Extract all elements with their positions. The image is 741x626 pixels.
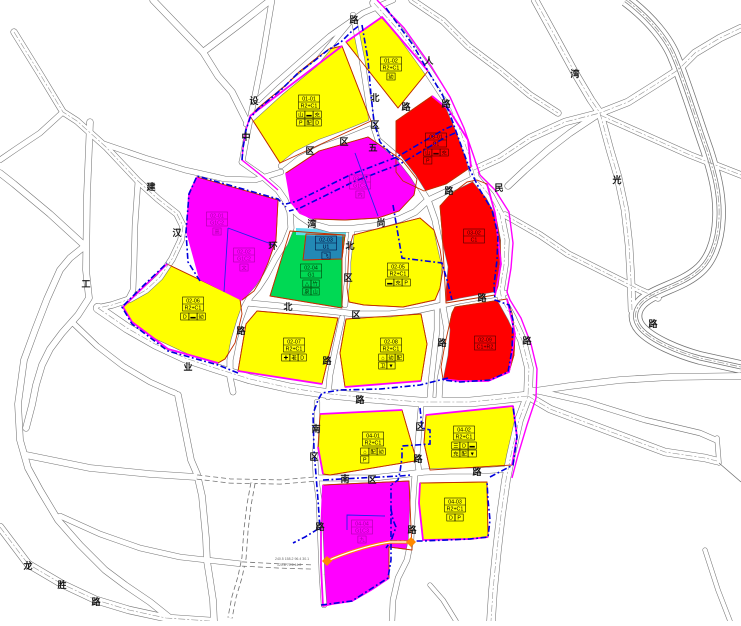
svg-text:幼: 幼 <box>388 353 393 361</box>
svg-text:北: 北 <box>345 240 354 251</box>
svg-text:⌂: ⌂ <box>363 449 366 455</box>
svg-text:竹: 竹 <box>312 279 318 287</box>
svg-text:04-03: 04-03 <box>448 500 462 506</box>
svg-text:幼: 幼 <box>388 72 393 80</box>
svg-text:▬: ▬ <box>306 112 312 118</box>
svg-text:路: 路 <box>349 14 359 25</box>
svg-text:内: 内 <box>357 190 362 198</box>
svg-text:▬: ▬ <box>387 280 393 286</box>
svg-text:高: 高 <box>214 227 219 235</box>
svg-text:老: 老 <box>291 353 297 361</box>
svg-text:P: P <box>457 515 461 521</box>
svg-text:汉: 汉 <box>172 227 182 238</box>
svg-text:D: D <box>462 443 466 449</box>
svg-text:P: P <box>426 158 430 164</box>
svg-text:04-02: 04-02 <box>457 428 471 434</box>
svg-text:R2+C1: R2+C1 <box>390 272 407 278</box>
svg-text:湾: 湾 <box>570 68 579 79</box>
svg-text:02-04: 02-04 <box>304 266 318 272</box>
svg-text:02-02: 02-02 <box>237 250 251 256</box>
svg-text:龙: 龙 <box>22 560 32 571</box>
svg-text:☰: ☰ <box>453 443 458 449</box>
svg-text:03-10: 03-10 <box>353 177 367 183</box>
svg-text:D: D <box>449 515 453 521</box>
svg-text:区: 区 <box>305 146 314 156</box>
svg-text:区: 区 <box>367 475 376 485</box>
svg-text:北: 北 <box>283 301 292 312</box>
svg-text:路: 路 <box>522 335 532 346</box>
svg-text:R2+C1: R2+C1 <box>286 347 303 353</box>
svg-text:G1C3: G1C3 <box>353 184 367 190</box>
svg-text:02-08: 02-08 <box>384 340 398 346</box>
svg-text:胜: 胜 <box>56 579 66 590</box>
svg-text:光: 光 <box>611 174 621 185</box>
svg-text:尚: 尚 <box>376 217 385 228</box>
svg-text:03-02: 03-02 <box>467 231 481 237</box>
svg-text:路: 路 <box>322 355 332 366</box>
svg-text:路: 路 <box>401 101 411 112</box>
svg-text:南: 南 <box>311 423 320 434</box>
svg-text:R2+C1: R2+C1 <box>185 306 202 312</box>
svg-text:山: 山 <box>312 287 317 295</box>
svg-text:区: 区 <box>343 273 352 283</box>
svg-text:充: 充 <box>395 278 401 286</box>
svg-text:路: 路 <box>441 98 451 109</box>
svg-text:路: 路 <box>236 325 246 336</box>
svg-text:民: 民 <box>494 183 503 193</box>
svg-text:业: 业 <box>183 361 192 372</box>
svg-text:G1: G1 <box>307 273 314 279</box>
svg-text:D: D <box>300 355 304 361</box>
svg-text:九: 九 <box>359 535 365 543</box>
svg-text:D: D <box>183 314 187 320</box>
svg-text:路: 路 <box>91 596 101 607</box>
svg-text:▬: ▬ <box>470 443 476 449</box>
svg-text:配: 配 <box>306 119 312 126</box>
svg-text:配: 配 <box>397 354 403 361</box>
svg-text:湾: 湾 <box>307 218 316 229</box>
svg-text:R2+C1: R2+C1 <box>365 441 382 447</box>
svg-text:充: 充 <box>453 449 459 457</box>
svg-text:03-01: 03-01 <box>429 135 443 141</box>
svg-text:▬: ▬ <box>190 314 196 320</box>
svg-text:区: 区 <box>415 422 424 432</box>
svg-text:山: 山 <box>298 110 303 118</box>
svg-text:C1: C1 <box>471 238 478 244</box>
svg-text:路: 路 <box>407 524 417 535</box>
svg-text:01-01: 01-01 <box>302 97 316 103</box>
svg-text:五: 五 <box>368 143 377 153</box>
svg-text:P: P <box>363 457 367 463</box>
svg-text:路: 路 <box>477 292 487 303</box>
svg-text:R2+C1: R2+C1 <box>301 104 318 110</box>
svg-text:路: 路 <box>315 521 325 532</box>
svg-text:幼: 幼 <box>199 312 204 320</box>
svg-text:区: 区 <box>309 452 318 462</box>
svg-text:路: 路 <box>437 337 447 348</box>
svg-text:卫: 卫 <box>380 362 386 369</box>
svg-text:▼: ▼ <box>388 363 393 369</box>
svg-text:人: 人 <box>423 55 434 66</box>
svg-text:02-05: 02-05 <box>391 265 405 271</box>
svg-text:D: D <box>315 120 319 126</box>
svg-text:充: 充 <box>315 110 321 118</box>
svg-text:P: P <box>299 120 303 126</box>
svg-text:R2+C1: R2+C1 <box>383 66 400 72</box>
svg-text:泉: 泉 <box>304 287 310 295</box>
svg-text:区: 区 <box>370 120 379 130</box>
svg-text:区: 区 <box>351 310 360 320</box>
svg-text:路: 路 <box>472 466 482 477</box>
svg-text:△: △ <box>305 281 309 287</box>
svg-text:C1: C1 <box>433 142 440 148</box>
svg-text:区: 区 <box>339 137 348 147</box>
svg-text:路: 路 <box>648 318 658 329</box>
svg-text:充: 充 <box>442 148 448 156</box>
svg-text:文: 文 <box>241 263 247 271</box>
svg-text:设: 设 <box>249 95 259 106</box>
svg-text:幼: 幼 <box>379 447 384 455</box>
svg-text:工: 工 <box>81 279 90 289</box>
svg-text:240.5 158.2 96.4 30.1: 240.5 158.2 96.4 30.1 <box>275 557 309 561</box>
svg-text:G1C3: G1C3 <box>355 529 369 535</box>
svg-text:01-02: 01-02 <box>384 59 398 65</box>
svg-text:R2+C1: R2+C1 <box>456 435 473 441</box>
svg-text:02-09: 02-09 <box>478 338 492 344</box>
svg-text:⌂: ⌂ <box>381 355 384 361</box>
svg-text:120.8 75.6 44.2: 120.8 75.6 44.2 <box>277 563 301 567</box>
svg-text:路: 路 <box>444 185 454 196</box>
svg-text:G1C2: G1C2 <box>210 221 224 227</box>
svg-text:中: 中 <box>241 131 250 142</box>
svg-text:路: 路 <box>413 453 423 464</box>
svg-text:配: 配 <box>370 448 376 455</box>
svg-text:02-06: 02-06 <box>186 299 200 305</box>
svg-text:北: 北 <box>370 92 379 103</box>
svg-text:C1+R2: C1+R2 <box>477 345 494 351</box>
svg-text:R2+C1: R2+C1 <box>447 507 464 513</box>
svg-text:▬: ▬ <box>433 150 439 156</box>
svg-text:02-07: 02-07 <box>287 340 301 346</box>
svg-text:环: 环 <box>268 241 277 251</box>
svg-text:U1: U1 <box>323 245 330 251</box>
svg-text:配: 配 <box>461 450 467 457</box>
svg-text:02-01: 02-01 <box>210 214 224 220</box>
svg-text:R2+C1: R2+C1 <box>383 347 400 353</box>
svg-text:✚: ✚ <box>284 355 288 361</box>
svg-text:飞: 飞 <box>323 252 329 259</box>
svg-text:04-04: 04-04 <box>355 522 369 528</box>
svg-text:G1C2: G1C2 <box>237 257 251 263</box>
svg-text:山: 山 <box>425 148 430 156</box>
svg-text:P: P <box>404 280 408 286</box>
svg-text:建: 建 <box>146 181 156 192</box>
svg-text:02-03: 02-03 <box>319 238 333 244</box>
svg-text:04-01: 04-01 <box>366 434 380 440</box>
svg-text:▼: ▼ <box>470 451 475 457</box>
svg-text:南: 南 <box>340 473 349 484</box>
svg-text:路: 路 <box>355 394 365 405</box>
